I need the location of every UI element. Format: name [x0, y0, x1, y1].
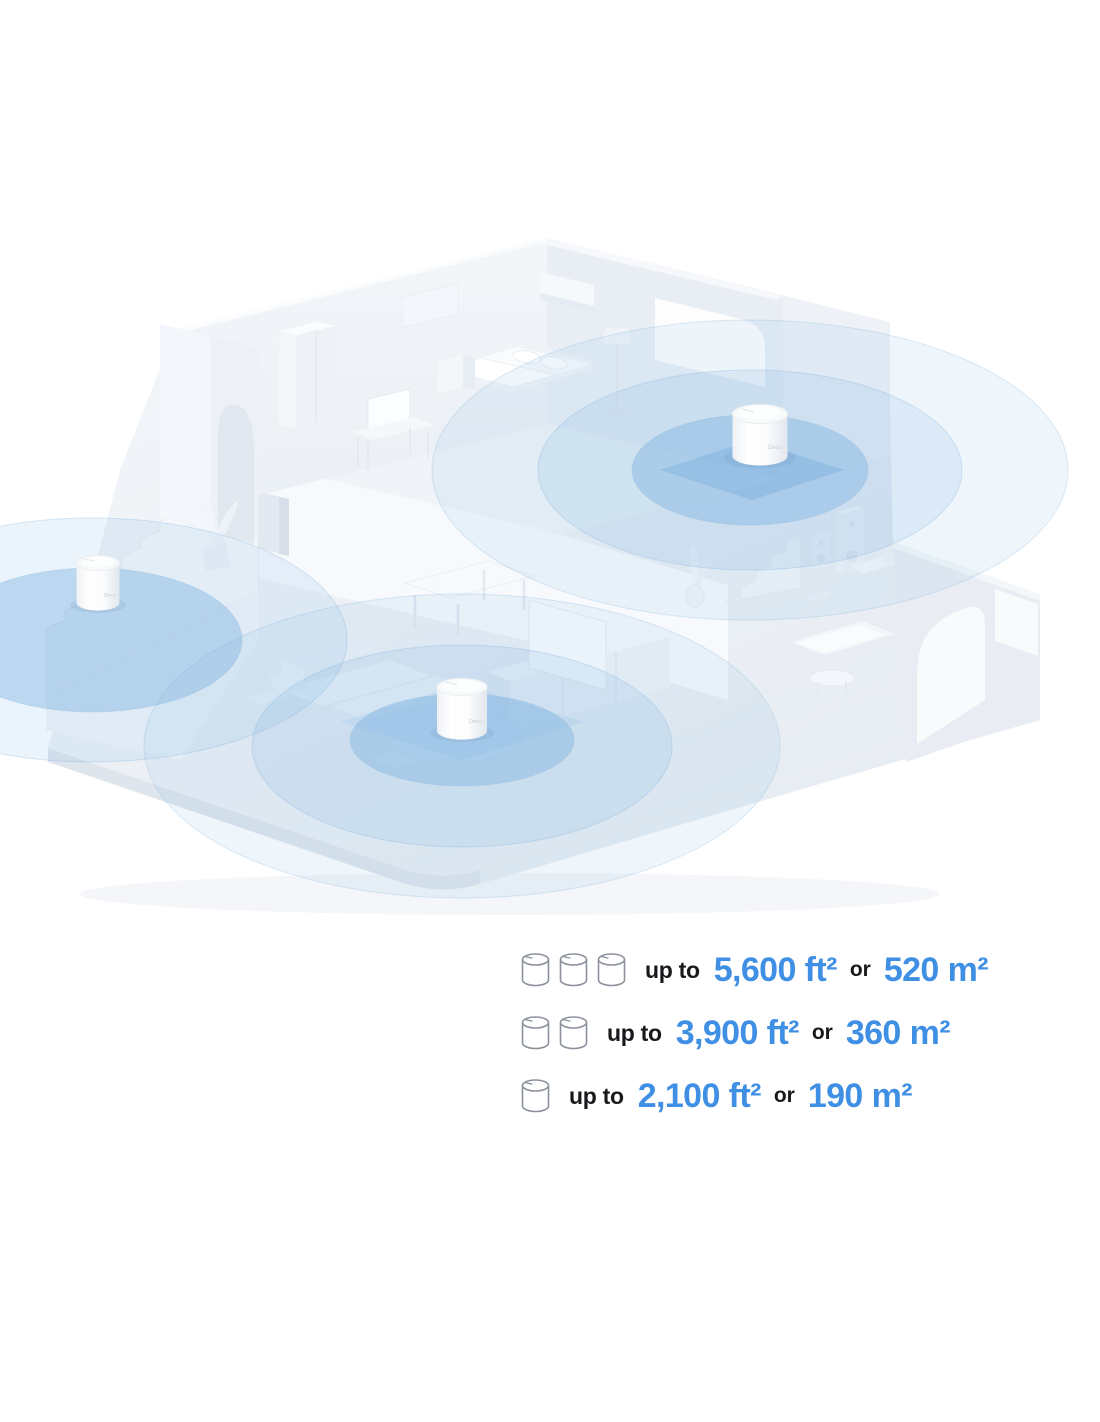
deco-unit-icons-2: [519, 1012, 590, 1054]
house-isometric-scene: Deco Deco Deco: [0, 0, 1100, 950]
nightstand: [437, 355, 475, 394]
legend-row-1-pack: up to 2,100 ft² or 190 m²: [519, 1072, 988, 1120]
up-to-label: up to: [645, 957, 700, 984]
coverage-ft-value: 2,100 ft²: [638, 1077, 761, 1116]
arch-column: [160, 324, 210, 530]
coverage-legend: up to 5,600 ft² or 520 m² up to 3,900 ft…: [519, 946, 988, 1120]
device-logo: Deco: [469, 719, 482, 725]
coverage-ft-value: 5,600 ft²: [714, 951, 837, 990]
deco-unit-icons-1: [519, 1075, 552, 1117]
device-logo: Deco: [768, 445, 783, 451]
or-label: or: [850, 958, 871, 982]
deco-cylinder-icon: [595, 949, 628, 991]
legend-row-3-pack: up to 5,600 ft² or 520 m²: [519, 946, 988, 994]
coverage-m-value: 520 m²: [884, 951, 988, 990]
coverage-m-value: 360 m²: [846, 1014, 950, 1053]
device-logo: Deco: [104, 593, 116, 599]
deco-unit-center: Deco: [430, 678, 494, 742]
ripple-center-unit: [144, 594, 780, 898]
deco-unit-left: Deco: [70, 556, 126, 614]
deco-cylinder-icon: [519, 949, 552, 991]
or-label: or: [812, 1021, 833, 1045]
up-to-label: up to: [569, 1083, 624, 1110]
wardrobe: [279, 322, 335, 429]
deco-cylinder-icon: [519, 1075, 552, 1117]
coverage-ft-value: 3,900 ft²: [676, 1014, 799, 1053]
deco-cylinder-icon: [557, 1012, 590, 1054]
ripple-top-right-unit: [432, 320, 1068, 620]
coverage-m-value: 190 m²: [808, 1077, 912, 1116]
deco-unit-top-right: Deco: [724, 405, 796, 469]
product-coverage-illustration: Deco Deco Deco: [0, 0, 1100, 1422]
deco-unit-icons-3: [519, 949, 628, 991]
deco-cylinder-icon: [557, 949, 590, 991]
legend-row-2-pack: up to 3,900 ft² or 360 m²: [519, 1009, 988, 1057]
deco-cylinder-icon: [519, 1012, 552, 1054]
up-to-label: up to: [607, 1020, 662, 1047]
or-label: or: [774, 1084, 795, 1108]
